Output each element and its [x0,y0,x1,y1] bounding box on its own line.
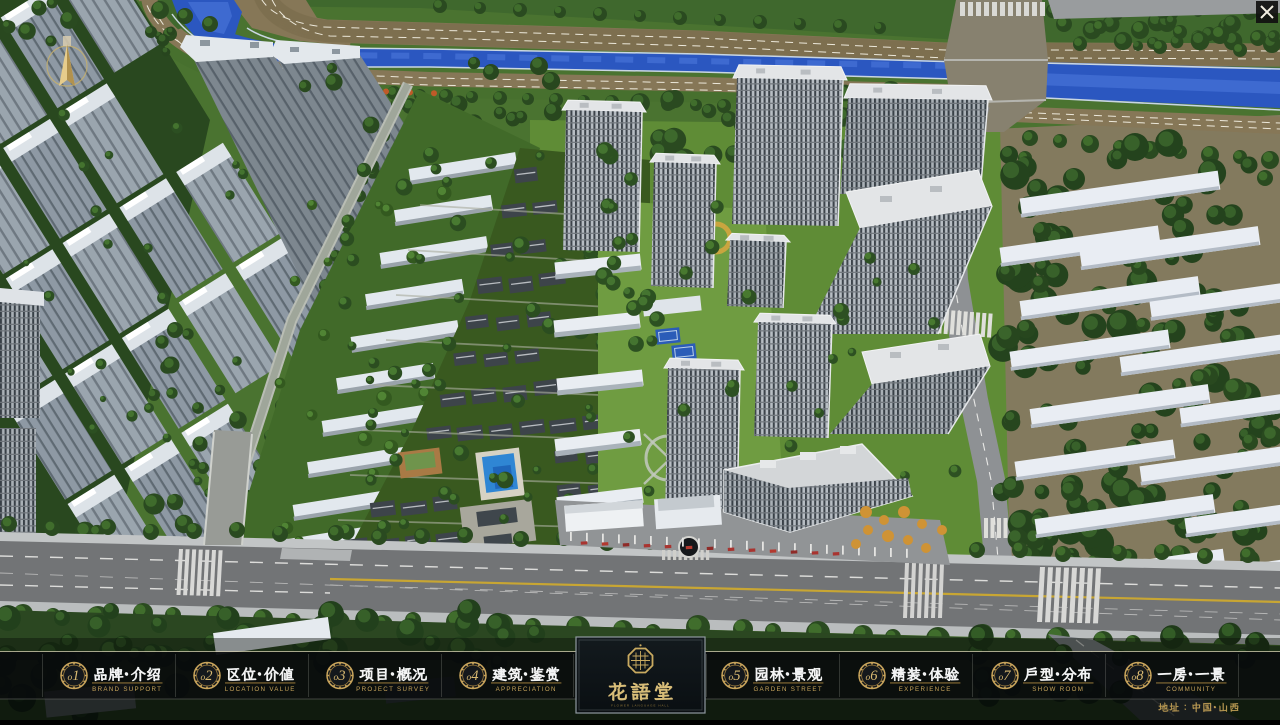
svg-text:APPRECIATION: APPRECIATION [496,686,557,693]
svg-text:BRAND SUPPORT: BRAND SUPPORT [92,686,162,693]
svg-text:EXPERIENCE: EXPERIENCE [899,686,952,693]
svg-text:COMMUNITY: COMMUNITY [1166,686,1216,693]
svg-text:PROJECT SURVEY: PROJECT SURVEY [356,686,430,693]
svg-text:FLOWER LANGUAGE HALL: FLOWER LANGUAGE HALL [611,704,670,708]
svg-text:LOCATION VALUE: LOCATION VALUE [225,686,296,693]
svg-text:GARDEN STREET: GARDEN STREET [753,686,823,693]
svg-text:SHOW ROOM: SHOW ROOM [1032,686,1084,693]
